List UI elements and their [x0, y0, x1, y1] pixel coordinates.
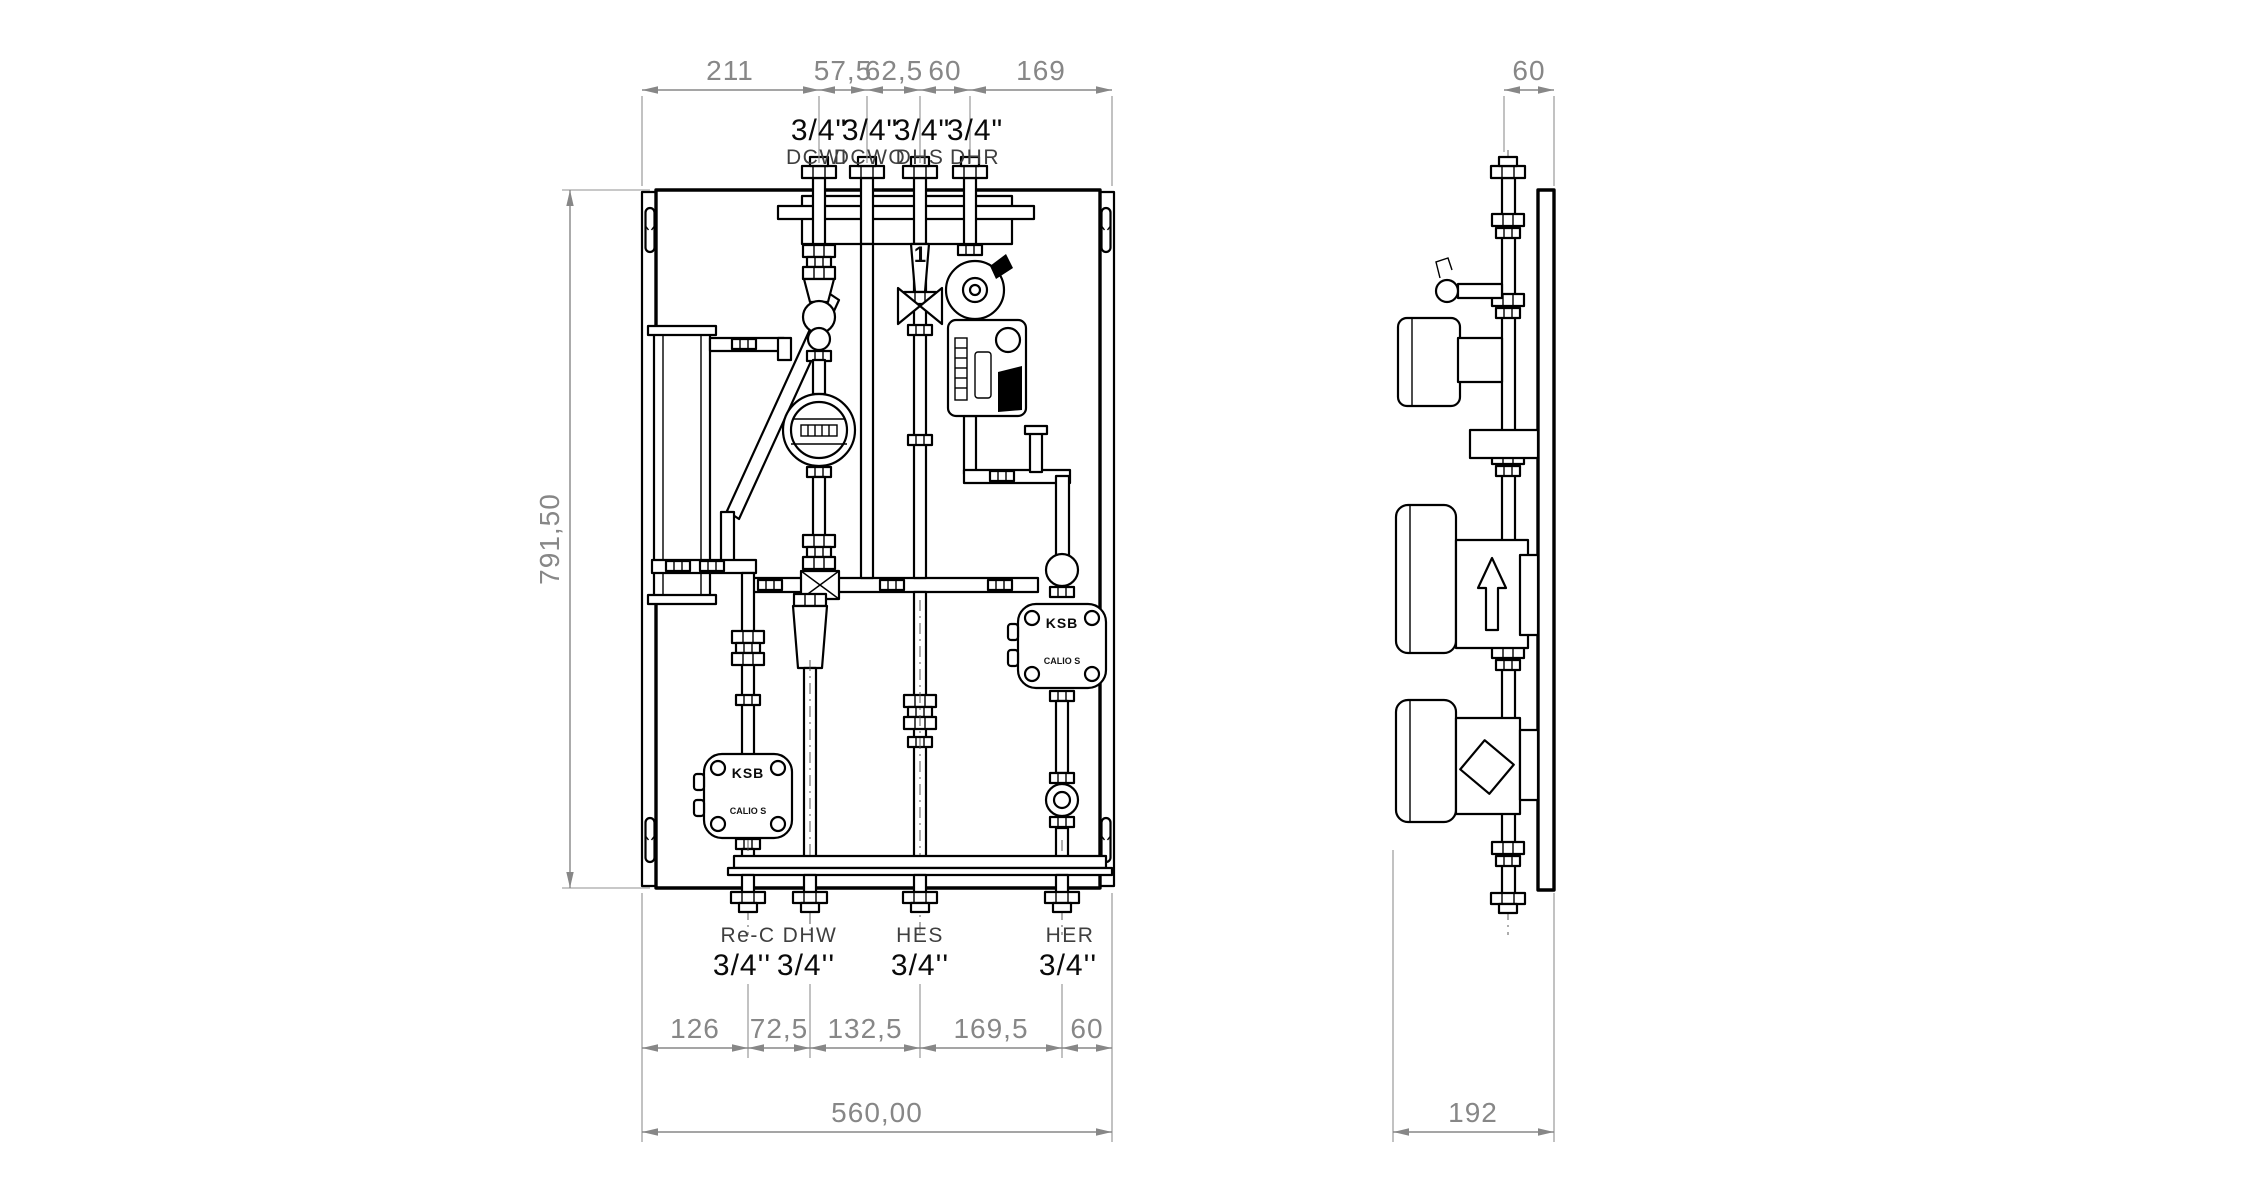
- dim-bottom-169-5: 169,5: [953, 1013, 1028, 1044]
- side-bracket: [1470, 430, 1538, 458]
- controller-box: [948, 320, 1026, 416]
- dim-side-offset: 60: [1512, 55, 1545, 86]
- port-hes-name: HES: [896, 924, 944, 947]
- port-her-name: HER: [1046, 924, 1095, 947]
- mount-slot: [646, 208, 655, 252]
- her-ball-valve: [1046, 773, 1078, 827]
- bottom-port-labels: Re-C DHW HES HER 3/4'' 3/4'' 3/4'' 3/4'': [713, 924, 1097, 982]
- side-standoff: [1520, 730, 1538, 800]
- dim-top-57-5: 57,5: [814, 55, 873, 86]
- dim-bottom-72-5: 72,5: [750, 1013, 809, 1044]
- port-dhw-name: DHW: [783, 924, 838, 947]
- dim-top-169: 169: [1016, 55, 1066, 86]
- pump-right: KSB CALIO S: [1008, 604, 1106, 688]
- dim-bottom-60: 60: [1070, 1013, 1103, 1044]
- side-upper-motor: [1398, 318, 1502, 406]
- port-dcwi-size: 3/4": [791, 114, 847, 147]
- port-rec-size: 3/4'': [713, 949, 771, 982]
- side-view: [1396, 150, 1554, 935]
- dim-total-width: 560,00: [831, 1097, 923, 1128]
- port-dhr-size: 3/4": [947, 114, 1003, 147]
- side-lower-motor: [1396, 700, 1520, 822]
- front-view: 1: [642, 150, 1114, 935]
- mount-slot: [646, 818, 655, 862]
- dim-top-60: 60: [928, 55, 961, 86]
- port-dhr-name: DHR: [950, 146, 1000, 169]
- dim-bottom-132-5: 132,5: [827, 1013, 902, 1044]
- dim-top-62-5: 62,5: [865, 55, 924, 86]
- port-dcwo-size: 3/4": [842, 114, 898, 147]
- pump-left: KSB CALIO S: [694, 754, 792, 838]
- pump-left-model: CALIO S: [730, 806, 767, 816]
- dcwo-line: [861, 244, 873, 578]
- port-rec-name: Re-C: [720, 924, 775, 947]
- dim-bottom-126: 126: [670, 1013, 720, 1044]
- port-dhw-size: 3/4'': [777, 949, 835, 982]
- dim-top-211: 211: [706, 55, 754, 86]
- port-dhs-name: DHS: [896, 146, 945, 169]
- port-dhs-size: 3/4": [894, 114, 950, 147]
- water-meter: [783, 394, 855, 466]
- drawing-sheet: 1: [0, 0, 2250, 1203]
- pump-right-brand: KSB: [1046, 615, 1079, 631]
- pump-left-brand: KSB: [732, 765, 765, 781]
- pump-right-model: CALIO S: [1044, 656, 1081, 666]
- mount-slot: [1102, 208, 1111, 252]
- cad-drawing: 1: [0, 0, 2250, 1203]
- valve-handle-label: 1: [914, 242, 926, 267]
- port-hes-size: 3/4'': [891, 949, 949, 982]
- dim-side-depth: 192: [1448, 1097, 1498, 1128]
- side-top-valve: [1436, 258, 1502, 302]
- dim-height: 791,50: [534, 493, 565, 585]
- bottom-manifold: [728, 856, 1112, 875]
- port-her-size: 3/4'': [1039, 949, 1097, 982]
- side-panel-plate: [1538, 190, 1554, 890]
- top-port-labels: 3/4" 3/4" 3/4" 3/4" DCWI DCWO DHS DHR: [786, 114, 1003, 169]
- side-standoff: [1520, 555, 1538, 635]
